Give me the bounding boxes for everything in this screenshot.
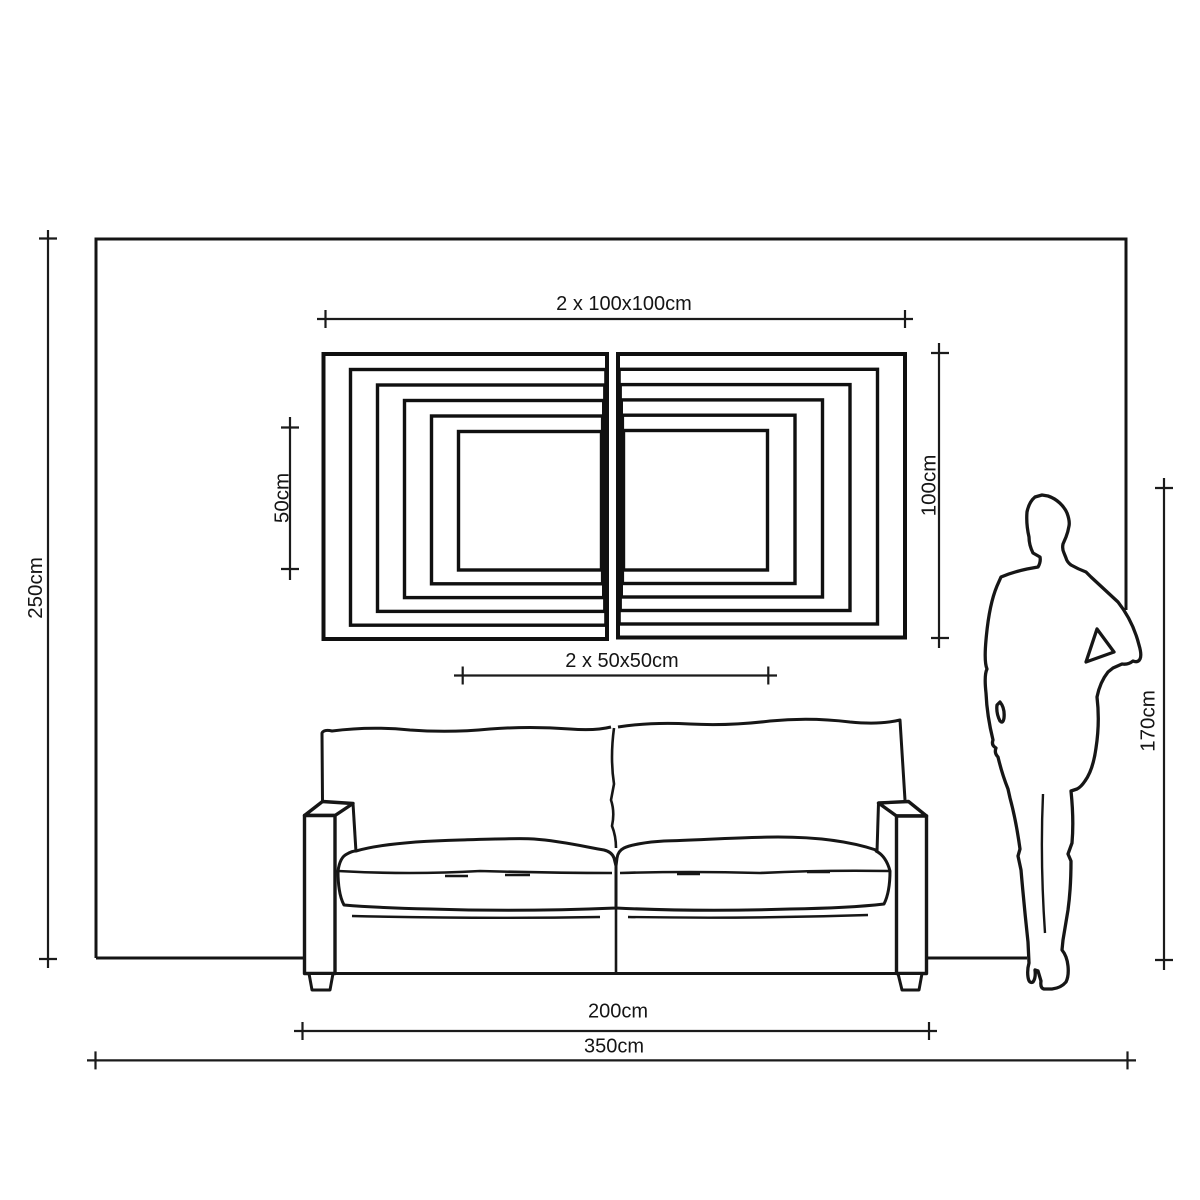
svg-text:350cm: 350cm (584, 1035, 644, 1057)
svg-text:170cm: 170cm (1137, 690, 1160, 752)
svg-text:50cm: 50cm (271, 473, 294, 523)
svg-text:2 x 50x50cm: 2 x 50x50cm (565, 650, 678, 672)
svg-text:250cm: 250cm (24, 557, 47, 619)
svg-text:100cm: 100cm (918, 455, 941, 517)
svg-text:2 x 100x100cm: 2 x 100x100cm (556, 293, 692, 315)
svg-text:200cm: 200cm (588, 1001, 648, 1023)
